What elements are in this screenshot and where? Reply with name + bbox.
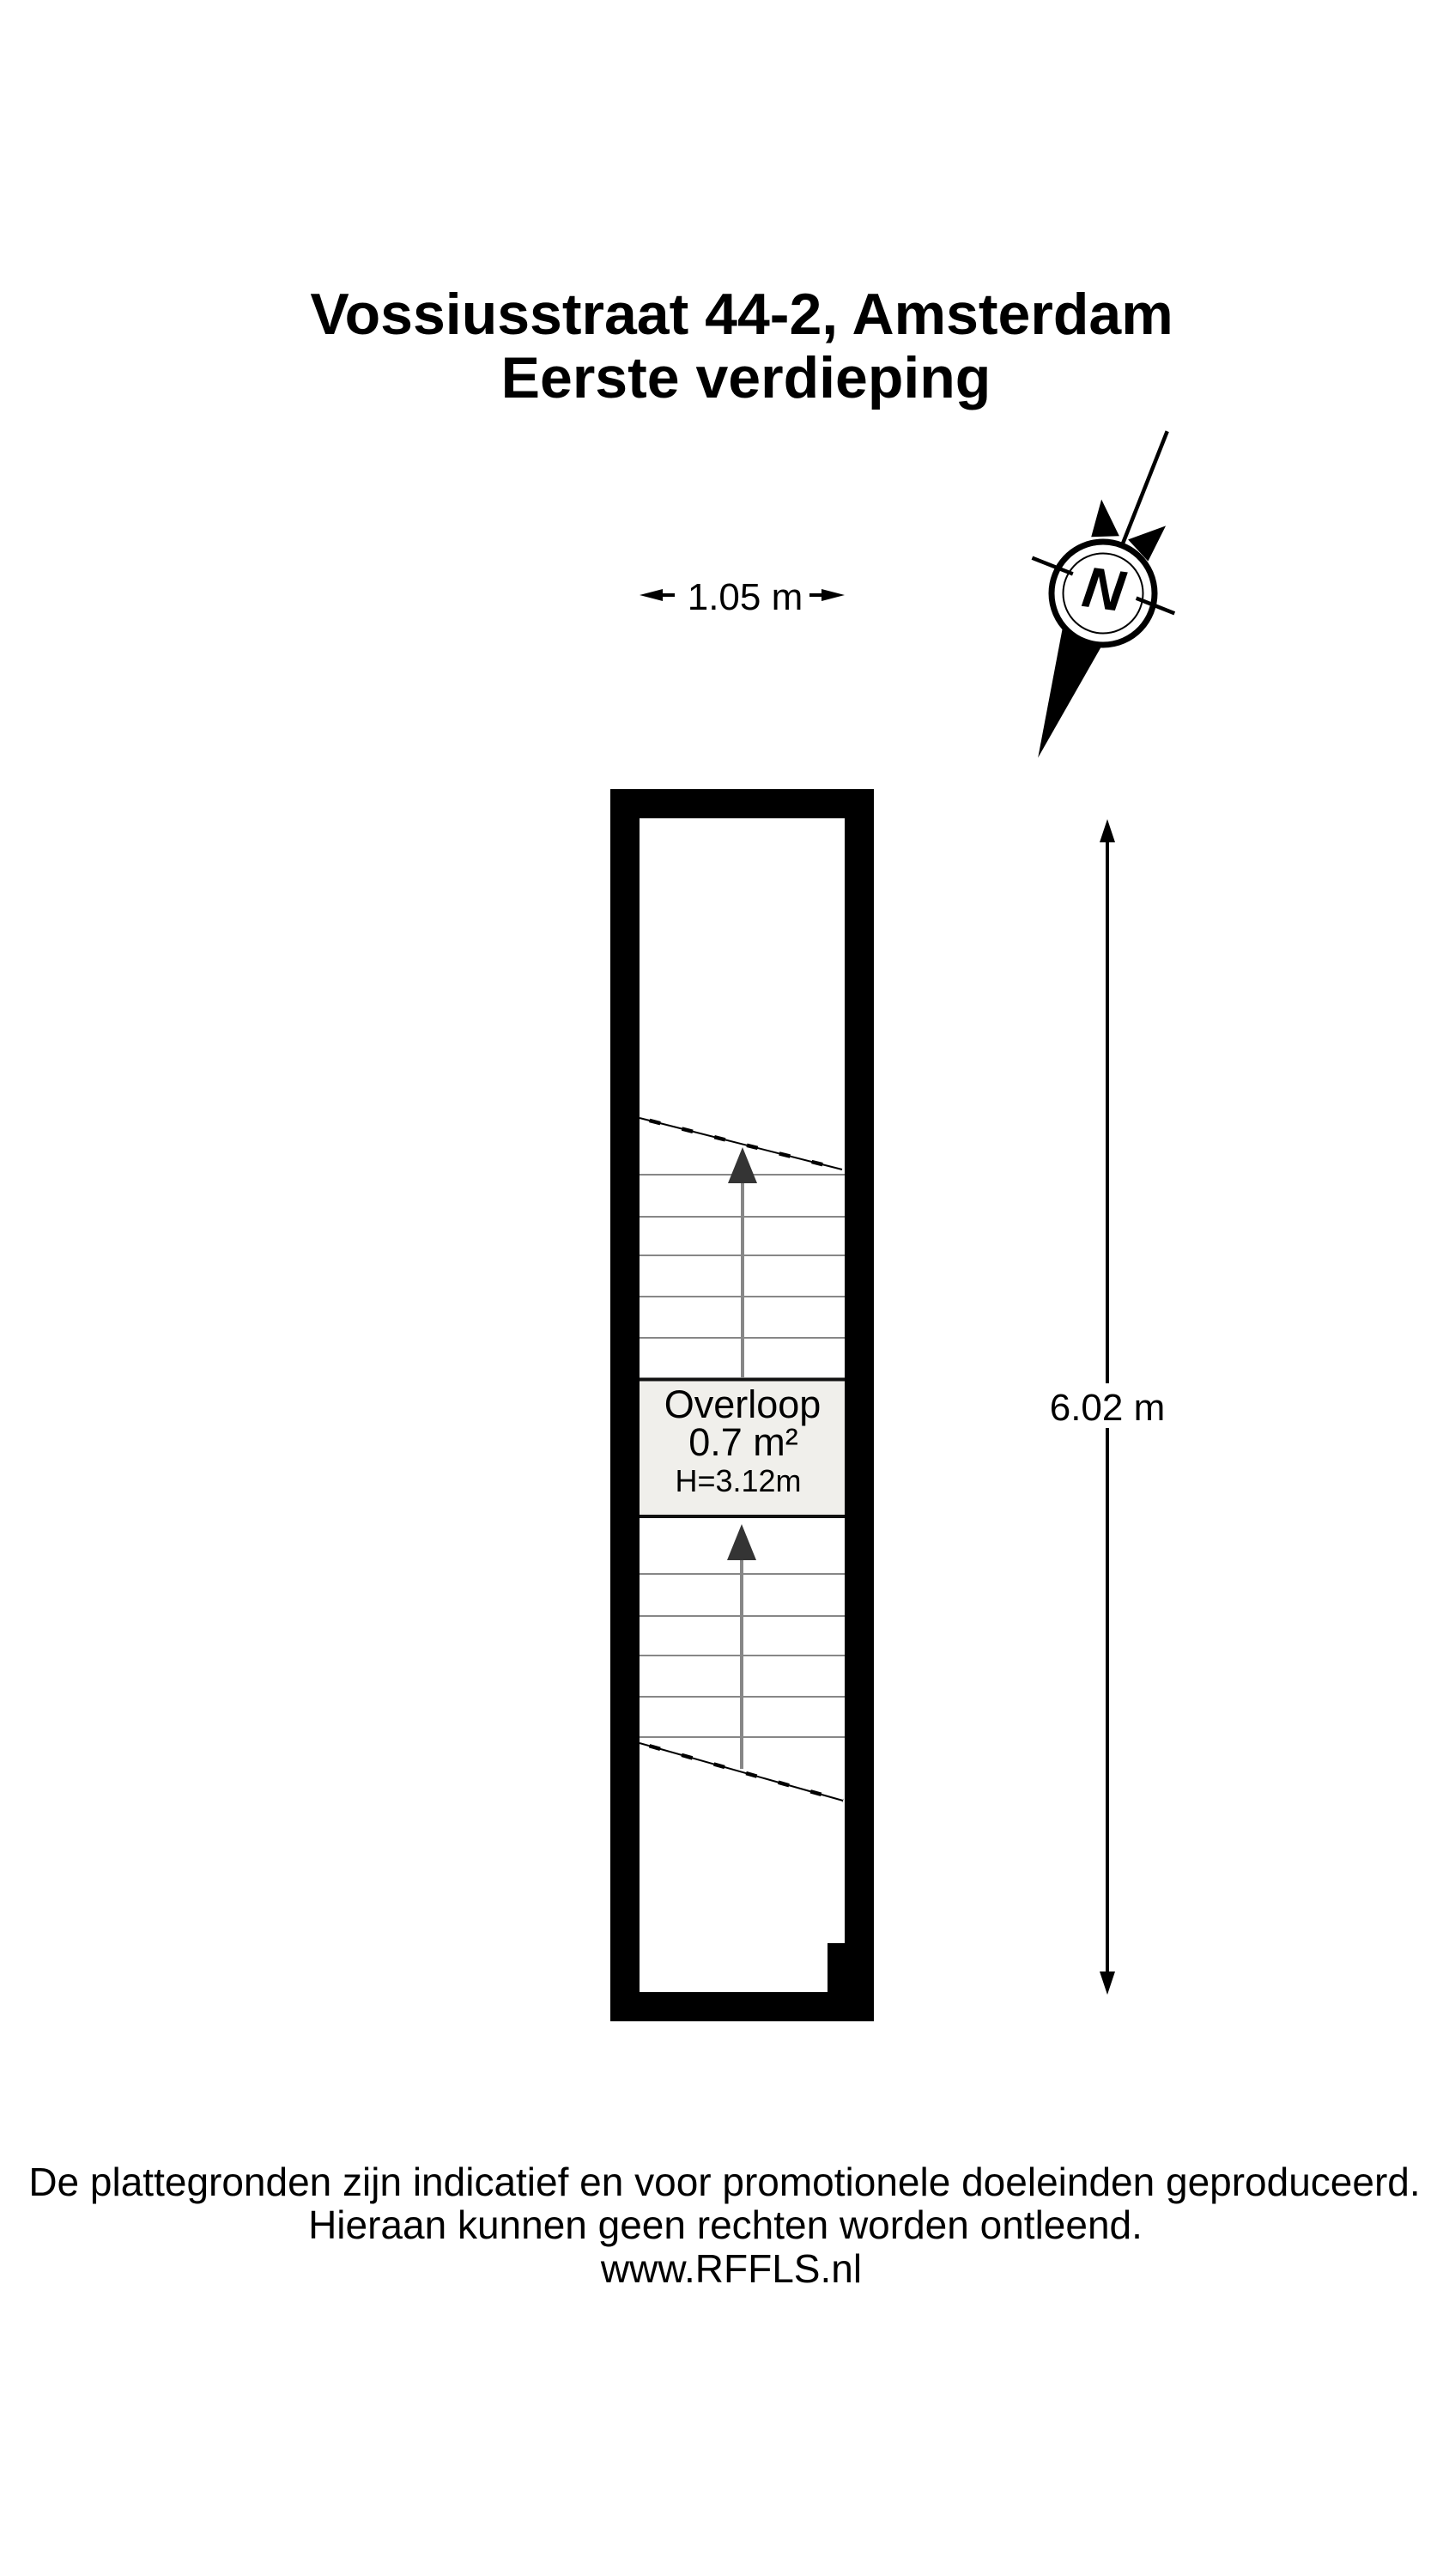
svg-text:Vossiusstraat 44-2, Amsterdam: Vossiusstraat 44-2, Amsterdam	[310, 282, 1173, 347]
svg-text:Hieraan kunnen geen rechten wo: Hieraan kunnen geen rechten worden ontle…	[308, 2202, 1143, 2247]
svg-text:1.05 m: 1.05 m	[688, 576, 803, 618]
svg-text:0.7 m²: 0.7 m²	[688, 1420, 798, 1464]
svg-text:www.RFFLS.nl: www.RFFLS.nl	[600, 2246, 862, 2291]
svg-text:6.02 m: 6.02 m	[1050, 1387, 1166, 1429]
svg-text:Eerste verdieping: Eerste verdieping	[501, 345, 991, 410]
svg-text:H=3.12m: H=3.12m	[675, 1463, 801, 1498]
svg-text:De plattegronden zijn indicati: De plattegronden zijn indicatief en voor…	[28, 2160, 1420, 2204]
